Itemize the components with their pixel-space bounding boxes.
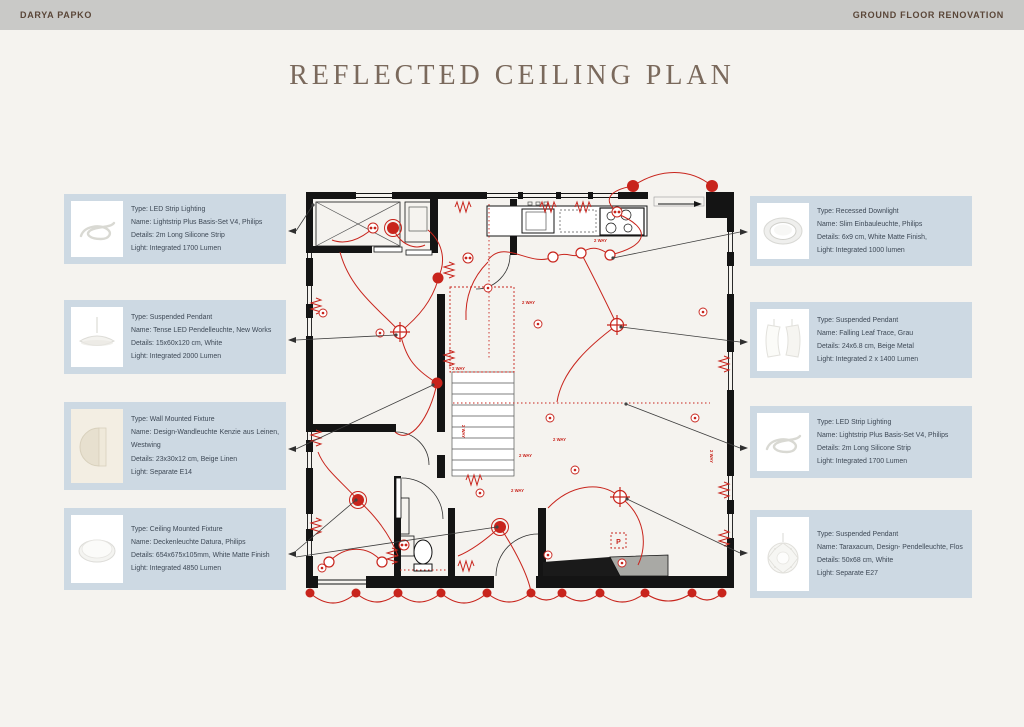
- fixture-card-led-strip-left: Type: LED Strip Lighting Name: Lightstri…: [64, 194, 286, 264]
- fixture-specs: Type: LED Strip Lighting Name: Lightstri…: [131, 203, 279, 256]
- fixture-type: Type: LED Strip Lighting: [131, 203, 279, 216]
- two-way-label: 2 WAY: [522, 300, 535, 305]
- fixture-name: Name: Tense LED Pendelleuchte, New Works: [131, 324, 279, 337]
- two-way-label: 2 WAY: [519, 453, 532, 458]
- ceiling-mounted-datura-icon: [74, 526, 120, 572]
- two-way-label: 2 WAY: [461, 425, 466, 438]
- fixture-type: Type: Recessed Downlight: [817, 205, 965, 218]
- two-way-label: 2 WAY: [594, 238, 607, 243]
- entry-door: [654, 197, 704, 207]
- fixture-details: Details: 6x9 cm, White Matte Finish,: [817, 231, 965, 244]
- fixture-name: Name: Falling Leaf Trace, Grau: [817, 327, 965, 340]
- fixture-thumbnail: [71, 307, 123, 367]
- fixture-type: Type: Wall Mounted Fixture: [131, 413, 279, 426]
- fixture-type: Type: LED Strip Lighting: [817, 416, 965, 429]
- fixture-details: Details: 23x30x12 cm, Beige Linen: [131, 453, 279, 466]
- two-way-label: 2 WAY: [511, 488, 524, 493]
- fixture-light: Light: Separate E14: [131, 466, 279, 479]
- fixture-specs: Type: Recessed Downlight Name: Slim Einb…: [817, 205, 965, 258]
- pendant-symbol: [610, 487, 630, 507]
- fixture-card-kenzie-wall-light: Type: Wall Mounted Fixture Name: Design-…: [64, 402, 286, 490]
- fixture-light: Light: Integrated 1700 Lumen: [817, 455, 965, 468]
- recessed-downlight-icon: [760, 208, 806, 254]
- led-strip-icon: [74, 206, 120, 252]
- fixture-name: Name: Deckenleuchte Datura, Philips: [131, 536, 279, 549]
- suspended-pendant-tense-icon: [74, 314, 120, 360]
- fixture-light: Light: Integrated 2000 Lumen: [131, 350, 279, 363]
- fixture-thumbnail: [757, 413, 809, 471]
- fixture-details: Details: 15x60x120 cm, White: [131, 337, 279, 350]
- fixture-name: Name: Lightstrip Plus Basis-Set V4, Phil…: [131, 216, 279, 229]
- fixture-type: Type: Ceiling Mounted Fixture: [131, 523, 279, 536]
- fixture-name: Name: Taraxacum, Design- Pendelleuchte, …: [817, 541, 965, 554]
- fixture-light: Light: Integrated 1700 Lumen: [131, 242, 279, 255]
- fixture-thumbnail: [757, 203, 809, 259]
- fixture-specs: Type: Wall Mounted Fixture Name: Design-…: [131, 413, 279, 479]
- fixture-specs: Type: Ceiling Mounted Fixture Name: Deck…: [131, 523, 279, 576]
- fixture-type: Type: Suspended Pendant: [131, 311, 279, 324]
- fixture-name: Name: Slim Einbauleuchte, Philips: [817, 218, 965, 231]
- wall-mounted-kenzie-icon: [74, 423, 120, 469]
- plan-furniture: [316, 202, 647, 576]
- fixture-specs: Type: Suspended Pendant Name: Tense LED …: [131, 311, 279, 364]
- led-strip-icon: [760, 419, 806, 465]
- leader-arrowheads: [288, 228, 748, 557]
- fixture-light: Light: Integrated 1000 lumen: [817, 244, 965, 257]
- fixture-type: Type: Suspended Pendant: [817, 528, 965, 541]
- fixture-light: Light: Integrated 2 x 1400 Lumen: [817, 353, 965, 366]
- two-way-label: 2 WAY: [553, 437, 566, 442]
- fixture-name: Name: Lightstrip Plus Basis-Set V4, Phil…: [817, 429, 965, 442]
- p-marker: P: [611, 533, 626, 548]
- fixture-thumbnail: [71, 409, 123, 483]
- fixture-thumbnail: [757, 309, 809, 371]
- fixture-specs: Type: Suspended Pendant Name: Taraxacum,…: [817, 528, 965, 581]
- fixture-card-taraxacum-pendant: Type: Suspended Pendant Name: Taraxacum,…: [750, 510, 972, 598]
- fixture-details: Details: 2m Long Silicone Strip: [131, 229, 279, 242]
- fixture-card-falling-leaf-pendant: Type: Suspended Pendant Name: Falling Le…: [750, 302, 972, 378]
- pendant-symbol: [607, 315, 627, 335]
- fixture-details: Details: 2m Long Silicone Strip: [817, 442, 965, 455]
- suspended-pendant-taraxacum-icon: [760, 531, 806, 577]
- suspended-pendant-falling-leaf-icon: [760, 317, 806, 363]
- fixture-thumbnail: [757, 517, 809, 591]
- plan-walls: [306, 192, 734, 588]
- two-way-label: 2 WAY: [452, 366, 465, 371]
- fixture-details: Details: 654x675x105mm, White Matte Fini…: [131, 549, 279, 562]
- fixture-specs: Type: Suspended Pendant Name: Falling Le…: [817, 314, 965, 367]
- fixture-name: Name: Design-Wandleuchte Kenzie aus Lein…: [131, 426, 279, 452]
- fixture-card-slim-downlight: Type: Recessed Downlight Name: Slim Einb…: [750, 196, 972, 266]
- fixture-type: Type: Suspended Pendant: [817, 314, 965, 327]
- fixture-details: Details: 50x68 cm, White: [817, 554, 965, 567]
- fixture-thumbnail: [71, 515, 123, 583]
- fixture-thumbnail: [71, 201, 123, 257]
- fixture-card-datura-ceiling: Type: Ceiling Mounted Fixture Name: Deck…: [64, 508, 286, 590]
- fixture-details: Details: 24x6.8 cm, Beige Metal: [817, 340, 965, 353]
- fixture-card-tense-pendant: Type: Suspended Pendant Name: Tense LED …: [64, 300, 286, 374]
- fixture-light: Light: Separate E27: [817, 567, 965, 580]
- p-marker-label: P: [616, 539, 621, 546]
- electrical-symbols: P 2 WAY 2 WAY 2 WAY 2 WAY 2 WAY 2 WAY 2 …: [306, 173, 730, 604]
- fixture-specs: Type: LED Strip Lighting Name: Lightstri…: [817, 416, 965, 469]
- fixture-light: Light: Integrated 4850 Lumen: [131, 562, 279, 575]
- builtin-bench: [543, 555, 668, 576]
- two-way-label: 2 WAY: [709, 450, 714, 463]
- fixture-card-led-strip-right: Type: LED Strip Lighting Name: Lightstri…: [750, 406, 972, 478]
